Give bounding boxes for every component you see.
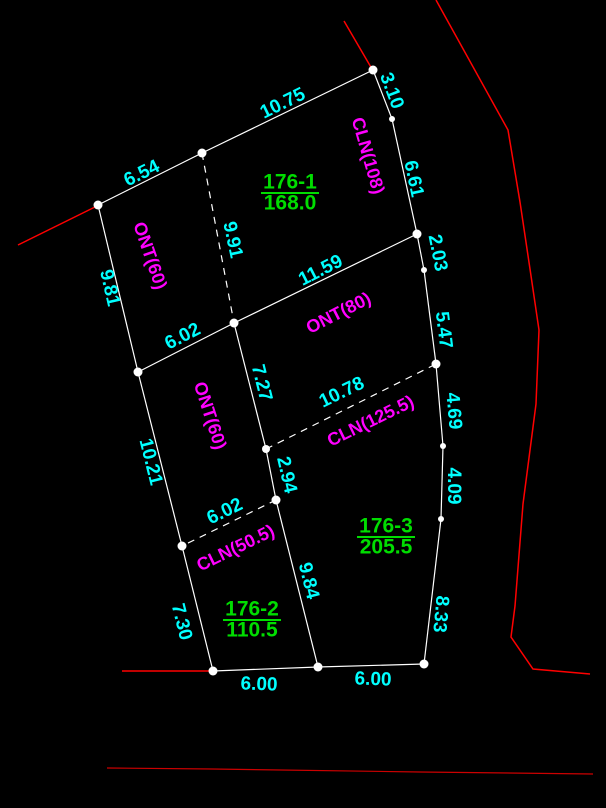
vertex-marker[interactable] xyxy=(421,267,427,273)
vertex-marker[interactable] xyxy=(94,201,103,210)
parcel-boundary-line[interactable] xyxy=(436,364,443,446)
dimension-label[interactable]: 2.94 xyxy=(272,455,301,496)
street-label[interactable]: ONT(80) xyxy=(303,288,374,338)
dimension-label[interactable]: 9.81 xyxy=(95,268,124,309)
parcel-boundary-line[interactable] xyxy=(266,449,276,500)
vertex-marker[interactable] xyxy=(420,660,429,669)
parcel-boundary-line[interactable] xyxy=(417,234,424,270)
dimension-label[interactable]: 6.61 xyxy=(399,159,427,200)
vertex-marker[interactable] xyxy=(178,542,187,551)
dimension-label[interactable]: 5.47 xyxy=(431,310,456,349)
vertex-marker[interactable] xyxy=(314,663,323,672)
vertex-marker[interactable] xyxy=(369,66,378,75)
parcel-area-label[interactable]: 110.5 xyxy=(226,619,278,642)
parcel-boundary-line[interactable] xyxy=(441,446,443,519)
cad-viewport[interactable]: 6.5410.753.106.612.035.474.694.098.336.0… xyxy=(0,0,606,808)
parcel-id-label[interactable]: 176-1 xyxy=(263,171,317,194)
vertex-marker[interactable] xyxy=(198,149,207,158)
parcel-area-label[interactable]: 168.0 xyxy=(264,192,317,215)
road-stub-west[interactable] xyxy=(18,206,97,245)
parcel-boundary-line[interactable] xyxy=(213,667,318,671)
road-east-edge[interactable] xyxy=(436,0,590,674)
parcel-id-label[interactable]: 176-2 xyxy=(225,598,279,621)
dimension-label[interactable]: 2.03 xyxy=(424,233,452,273)
street-label[interactable]: CLN(50.5) xyxy=(193,520,277,575)
parcel-id-label[interactable]: 176-3 xyxy=(359,515,413,538)
parcel-map-svg[interactable]: 6.5410.753.106.612.035.474.694.098.336.0… xyxy=(0,0,606,808)
vertex-marker[interactable] xyxy=(262,445,270,453)
dimension-label[interactable]: 3.10 xyxy=(375,70,408,112)
vertex-marker[interactable] xyxy=(438,516,444,522)
dimension-label[interactable]: 9.84 xyxy=(294,560,323,601)
parcel-boundary-line[interactable] xyxy=(318,664,424,667)
dimension-label[interactable]: 4.69 xyxy=(441,392,465,431)
dimension-label[interactable]: 6.02 xyxy=(204,494,246,529)
vertex-marker[interactable] xyxy=(272,496,281,505)
dimension-label[interactable]: 8.33 xyxy=(428,595,452,634)
dimension-label[interactable]: 11.59 xyxy=(295,251,346,291)
street-label[interactable]: ONT(60) xyxy=(129,219,171,292)
parcel-area-label[interactable]: 205.5 xyxy=(360,536,413,559)
street-label[interactable]: ONT(60) xyxy=(190,379,231,452)
dimension-label[interactable]: 6.00 xyxy=(354,668,392,690)
dimension-label[interactable]: 6.00 xyxy=(240,673,278,695)
dimension-label[interactable]: 6.54 xyxy=(121,156,164,191)
vertex-marker[interactable] xyxy=(134,368,143,377)
parcel-boundary-line[interactable] xyxy=(424,519,441,664)
vertex-marker[interactable] xyxy=(432,360,441,369)
vertex-marker[interactable] xyxy=(230,319,239,328)
vertex-marker[interactable] xyxy=(209,667,218,676)
road-stub-north[interactable] xyxy=(344,21,372,69)
dimension-label[interactable]: 10.75 xyxy=(257,84,309,124)
dimension-label[interactable]: 4.09 xyxy=(443,468,464,505)
vertex-marker[interactable] xyxy=(389,116,395,122)
dimension-label[interactable]: 10.21 xyxy=(135,436,167,488)
dimension-label[interactable]: 10.78 xyxy=(316,373,368,413)
dimension-label[interactable]: 7.27 xyxy=(247,362,276,403)
road-south-edge[interactable] xyxy=(107,768,593,774)
vertex-marker[interactable] xyxy=(440,443,446,449)
dimension-label[interactable]: 9.91 xyxy=(218,220,246,261)
dimension-label[interactable]: 7.30 xyxy=(167,601,196,642)
street-label[interactable]: CLN(108) xyxy=(348,115,389,196)
vertex-marker[interactable] xyxy=(413,230,422,239)
